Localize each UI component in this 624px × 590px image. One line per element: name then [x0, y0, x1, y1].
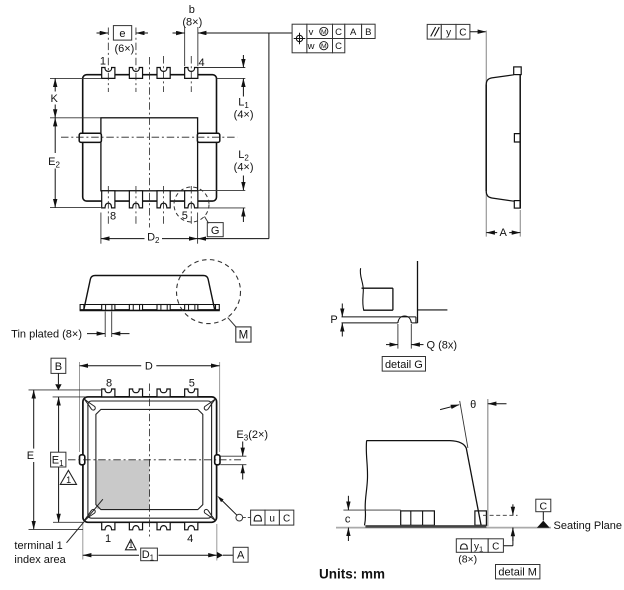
- svg-text:detail M: detail M: [498, 567, 537, 579]
- svg-text:Q (8x): Q (8x): [427, 340, 458, 352]
- svg-text:e: e: [119, 28, 125, 40]
- svg-text:1: 1: [100, 56, 106, 68]
- svg-text:C: C: [492, 541, 499, 552]
- svg-text:D: D: [145, 361, 153, 373]
- svg-text:1: 1: [66, 475, 71, 485]
- svg-text:A: A: [237, 550, 245, 562]
- svg-text:C: C: [283, 514, 290, 525]
- svg-text:Tin plated (8×): Tin plated (8×): [11, 329, 82, 341]
- svg-text:detail G: detail G: [385, 359, 423, 371]
- svg-text:G: G: [211, 225, 220, 237]
- svg-text:Units: mm: Units: mm: [319, 567, 385, 582]
- svg-text:5: 5: [189, 378, 195, 390]
- svg-text:8: 8: [110, 211, 116, 223]
- svg-text:A: A: [350, 27, 357, 38]
- svg-text:C: C: [335, 41, 342, 52]
- svg-text:C: C: [335, 27, 342, 38]
- svg-text:C: C: [459, 27, 466, 38]
- svg-text:E3(2×): E3(2×): [236, 429, 268, 443]
- svg-text:5: 5: [182, 210, 188, 222]
- svg-text:1: 1: [105, 533, 111, 545]
- svg-text:C: C: [540, 500, 548, 512]
- svg-text:K: K: [51, 93, 59, 105]
- svg-text:index area: index area: [14, 554, 66, 566]
- svg-text:(8×): (8×): [458, 554, 477, 566]
- svg-text:b: b: [189, 4, 195, 16]
- svg-text:A: A: [500, 227, 508, 239]
- svg-text:8: 8: [106, 378, 112, 390]
- svg-text:v: v: [309, 27, 314, 38]
- svg-text:B: B: [55, 361, 62, 373]
- svg-text:P: P: [330, 314, 337, 326]
- svg-text:4: 4: [199, 57, 205, 69]
- svg-text:(4×): (4×): [234, 162, 254, 174]
- svg-text:(6×): (6×): [114, 43, 134, 55]
- svg-text:w: w: [307, 41, 315, 52]
- svg-text:c: c: [345, 513, 351, 525]
- svg-text:4: 4: [187, 533, 193, 545]
- svg-text:θ: θ: [470, 399, 476, 411]
- svg-text:terminal 1: terminal 1: [14, 540, 62, 552]
- svg-text:M: M: [321, 29, 327, 36]
- svg-text:B: B: [365, 27, 371, 38]
- svg-text:y: y: [446, 27, 451, 38]
- svg-text:1: 1: [128, 540, 133, 550]
- svg-text:M: M: [239, 330, 249, 342]
- svg-text:M: M: [321, 43, 327, 50]
- svg-text:E: E: [27, 450, 34, 462]
- svg-text:Seating Plane: Seating Plane: [554, 520, 623, 532]
- svg-text:(4×): (4×): [234, 109, 254, 121]
- svg-text:u: u: [269, 514, 275, 525]
- svg-text:(8×): (8×): [182, 17, 202, 29]
